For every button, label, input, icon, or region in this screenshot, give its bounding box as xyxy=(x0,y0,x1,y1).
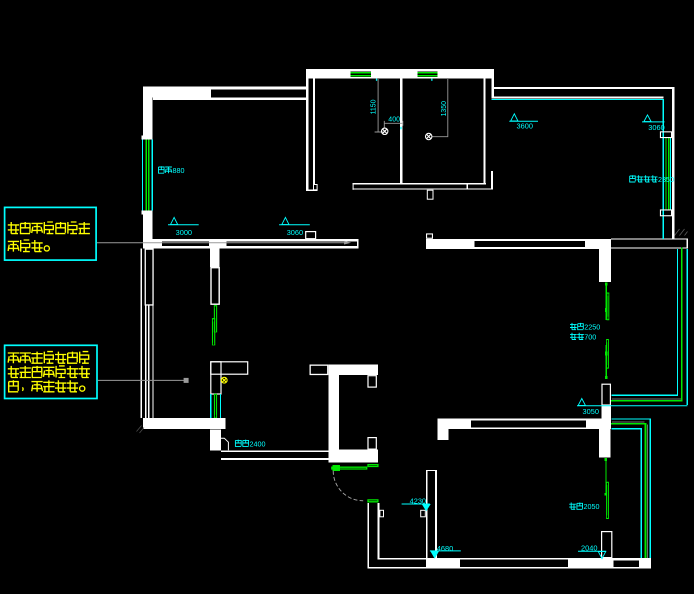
svg-text:700: 700 xyxy=(584,332,596,341)
svg-text:3000: 3000 xyxy=(176,228,192,237)
svg-text:3060: 3060 xyxy=(287,228,303,237)
svg-text:400: 400 xyxy=(388,116,400,123)
svg-text:880: 880 xyxy=(173,166,185,175)
svg-text:4680: 4680 xyxy=(437,544,453,553)
svg-text:3060: 3060 xyxy=(648,123,664,132)
svg-text:2350: 2350 xyxy=(658,175,674,184)
svg-text:2400: 2400 xyxy=(250,439,266,448)
svg-text:3600: 3600 xyxy=(517,122,533,131)
svg-text:2050: 2050 xyxy=(584,502,600,511)
svg-text:3050: 3050 xyxy=(583,407,599,416)
svg-text:1150: 1150 xyxy=(371,99,378,114)
svg-text:2250: 2250 xyxy=(584,323,600,332)
svg-text:1350: 1350 xyxy=(441,101,448,116)
